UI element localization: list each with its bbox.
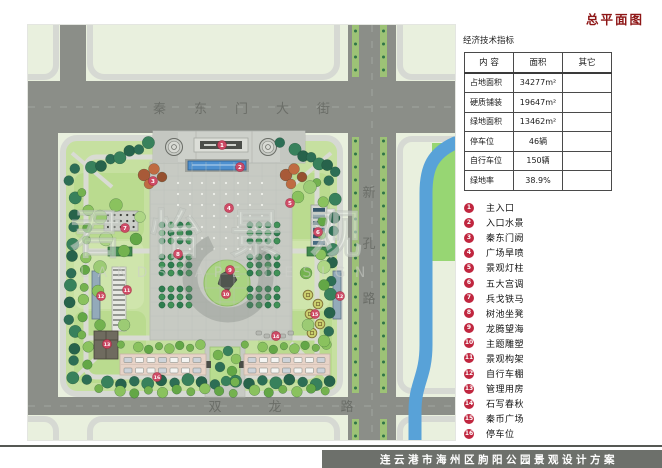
- road-label-shuanglong-3: 路: [340, 399, 353, 415]
- legend-label: 景观灯柱: [486, 261, 524, 274]
- svg-text:1: 1: [220, 143, 224, 149]
- table-cell: [563, 171, 612, 191]
- legend-label: 五大宫调: [486, 277, 524, 290]
- road-label-xinkong-3: 路: [362, 291, 375, 307]
- plan-marker: 6: [313, 227, 322, 236]
- site-plan-drawing: 秦东门大街 新 孔 路 双 龙 路: [28, 25, 455, 440]
- table-cell: [563, 93, 612, 113]
- table-cell: [563, 112, 612, 132]
- legend-marker: 14: [464, 399, 474, 409]
- table-row: 停车位46辆: [465, 132, 612, 152]
- svg-text:15: 15: [312, 312, 318, 318]
- legend-marker: 15: [464, 414, 474, 424]
- legend-marker: 16: [464, 429, 474, 439]
- svg-text:9: 9: [228, 268, 232, 274]
- plan-marker: 1: [217, 140, 226, 149]
- legend-label: 自行车棚: [486, 367, 524, 380]
- plan-marker: 9: [225, 265, 234, 274]
- table-cell: 19647m²: [514, 93, 563, 113]
- legend-marker: 9: [464, 323, 474, 333]
- svg-text:3: 3: [151, 179, 155, 185]
- svg-text:12: 12: [98, 294, 104, 300]
- legend-item: 5景观灯柱: [464, 260, 654, 275]
- svg-text:2: 2: [238, 165, 242, 171]
- table-header: 面积: [514, 53, 563, 73]
- table-cell: 46辆: [514, 132, 563, 152]
- legend-item: 9龙腾望海: [464, 321, 654, 336]
- table-cell: 38.9%: [514, 171, 563, 191]
- legend-item: 11景观构架: [464, 351, 654, 366]
- svg-text:7: 7: [123, 226, 127, 232]
- legend-marker: 5: [464, 263, 474, 273]
- legend-marker: 11: [464, 353, 474, 363]
- road-label-qindongmen: 秦东门大街: [153, 102, 358, 117]
- road-label-shuanglong-1: 双: [208, 400, 221, 415]
- plan-marker: 16: [152, 372, 161, 381]
- footer-title: 连云港市海州区朐阳公园景观设计方案: [366, 452, 618, 467]
- svg-text:10: 10: [223, 292, 229, 298]
- table-row: 占地面积34277m²: [465, 73, 612, 93]
- legend-item: 15秦币广场: [464, 411, 654, 426]
- plan-marker: 5: [285, 198, 294, 207]
- medallion-left: [166, 139, 183, 156]
- svg-text:6: 6: [316, 230, 320, 236]
- table-cell: 34277m²: [514, 73, 563, 93]
- legend-label: 兵戈铁马: [486, 292, 524, 305]
- legend-label: 秦东门阙: [486, 231, 524, 244]
- plan-marker: 11: [122, 285, 131, 294]
- svg-text:16: 16: [154, 375, 160, 381]
- svg-text:5: 5: [288, 201, 292, 207]
- legend-marker: 2: [464, 218, 474, 228]
- legend-marker: 1: [464, 203, 474, 213]
- legend-label: 石写春秋: [486, 397, 524, 410]
- legend-item: 8树池坐凳: [464, 306, 654, 321]
- svg-text:12: 12: [337, 294, 343, 300]
- table-cell: [563, 73, 612, 93]
- legend-marker: 7: [464, 293, 474, 303]
- legend-item: 14石写春秋: [464, 396, 654, 411]
- legend-marker: 6: [464, 278, 474, 288]
- legend-label: 入口水景: [486, 216, 524, 229]
- legend-item: 10主题雕塑: [464, 336, 654, 351]
- road-label-xinkong-1: 新: [362, 185, 375, 201]
- legend-marker: 10: [464, 338, 474, 348]
- table-cell: 自行车位: [465, 151, 514, 171]
- table-row: 绿地面积13462m²: [465, 112, 612, 132]
- table-row: 绿地率38.9%: [465, 171, 612, 191]
- legend: 1主入口2入口水景3秦东门阙4广场旱喷5景观灯柱6五大宫调7兵戈铁马8树池坐凳9…: [464, 200, 654, 442]
- legend-item: 7兵戈铁马: [464, 291, 654, 306]
- legend-label: 景观构架: [486, 352, 524, 365]
- svg-text:4: 4: [227, 206, 231, 212]
- plan-marker: 12: [335, 291, 344, 300]
- medallion-right: [260, 139, 277, 156]
- plan-marker: 12: [96, 291, 105, 300]
- plan-marker: 10: [221, 289, 230, 298]
- plan-marker: 7: [120, 223, 129, 232]
- legend-item: 3秦东门阙: [464, 230, 654, 245]
- legend-item: 4广场旱喷: [464, 245, 654, 260]
- footer-rule: [0, 445, 662, 447]
- plan-marker: 8: [173, 249, 182, 258]
- legend-label: 管理用房: [486, 382, 524, 395]
- table-cell: 占地面积: [465, 73, 514, 93]
- table-cell: 硬质铺装: [465, 93, 514, 113]
- legend-label: 广场旱喷: [486, 246, 524, 259]
- table-cell: 绿地面积: [465, 112, 514, 132]
- legend-item: 6五大宫调: [464, 275, 654, 290]
- plan-marker: 15: [310, 309, 319, 318]
- plan-marker: 2: [235, 162, 244, 171]
- svg-text:8: 8: [176, 252, 180, 258]
- table-row: 硬质铺装19647m²: [465, 93, 612, 113]
- table-header: 内 容: [465, 53, 514, 73]
- plan-marker: 13: [102, 339, 111, 348]
- svg-text:13: 13: [104, 342, 110, 348]
- legend-label: 停车位: [486, 427, 515, 440]
- svg-text:14: 14: [273, 334, 279, 340]
- road-label-shuanglong-2: 龙: [268, 400, 281, 415]
- footer-title-bar: 连云港市海州区朐阳公园景观设计方案: [322, 450, 662, 468]
- table-header: 其它: [563, 53, 612, 73]
- table-cell: 绿地率: [465, 171, 514, 191]
- legend-marker: 4: [464, 248, 474, 258]
- legend-marker: 13: [464, 384, 474, 394]
- table-cell: [563, 132, 612, 152]
- table-cell: 150辆: [514, 151, 563, 171]
- plan-marker: 14: [271, 331, 280, 340]
- watermark-cn: 君怡景观: [70, 206, 390, 266]
- table-cell: [563, 151, 612, 171]
- indicators-table: 内 容面积其它 占地面积34277m²硬质铺装19647m²绿地面积13462m…: [464, 52, 612, 191]
- legend-item: 1主入口: [464, 200, 654, 215]
- right-panel: 经济技术指标 内 容面积其它 占地面积34277m²硬质铺装19647m²绿地面…: [462, 34, 658, 191]
- site-plan: 秦东门大街 新 孔 路 双 龙 路: [28, 25, 455, 440]
- legend-marker: 8: [464, 308, 474, 318]
- legend-item: 16停车位: [464, 426, 654, 441]
- page-title: 总平面图: [586, 9, 644, 28]
- table-row: 自行车位150辆: [465, 151, 612, 171]
- legend-label: 主入口: [486, 201, 515, 214]
- plan-marker: 3: [148, 176, 157, 185]
- legend-marker: 3: [464, 233, 474, 243]
- legend-item: 13管理用房: [464, 381, 654, 396]
- svg-text:11: 11: [124, 288, 130, 294]
- table-cell: 13462m²: [514, 112, 563, 132]
- legend-label: 秦币广场: [486, 412, 524, 425]
- table-cell: 停车位: [465, 132, 514, 152]
- indicators-title: 经济技术指标: [463, 34, 658, 46]
- legend-marker: 12: [464, 369, 474, 379]
- legend-item: 12自行车棚: [464, 366, 654, 381]
- legend-label: 龙腾望海: [486, 322, 524, 335]
- legend-item: 2入口水景: [464, 215, 654, 230]
- plan-marker: 4: [224, 203, 233, 212]
- legend-label: 树池坐凳: [486, 307, 524, 320]
- legend-label: 主题雕塑: [486, 337, 524, 350]
